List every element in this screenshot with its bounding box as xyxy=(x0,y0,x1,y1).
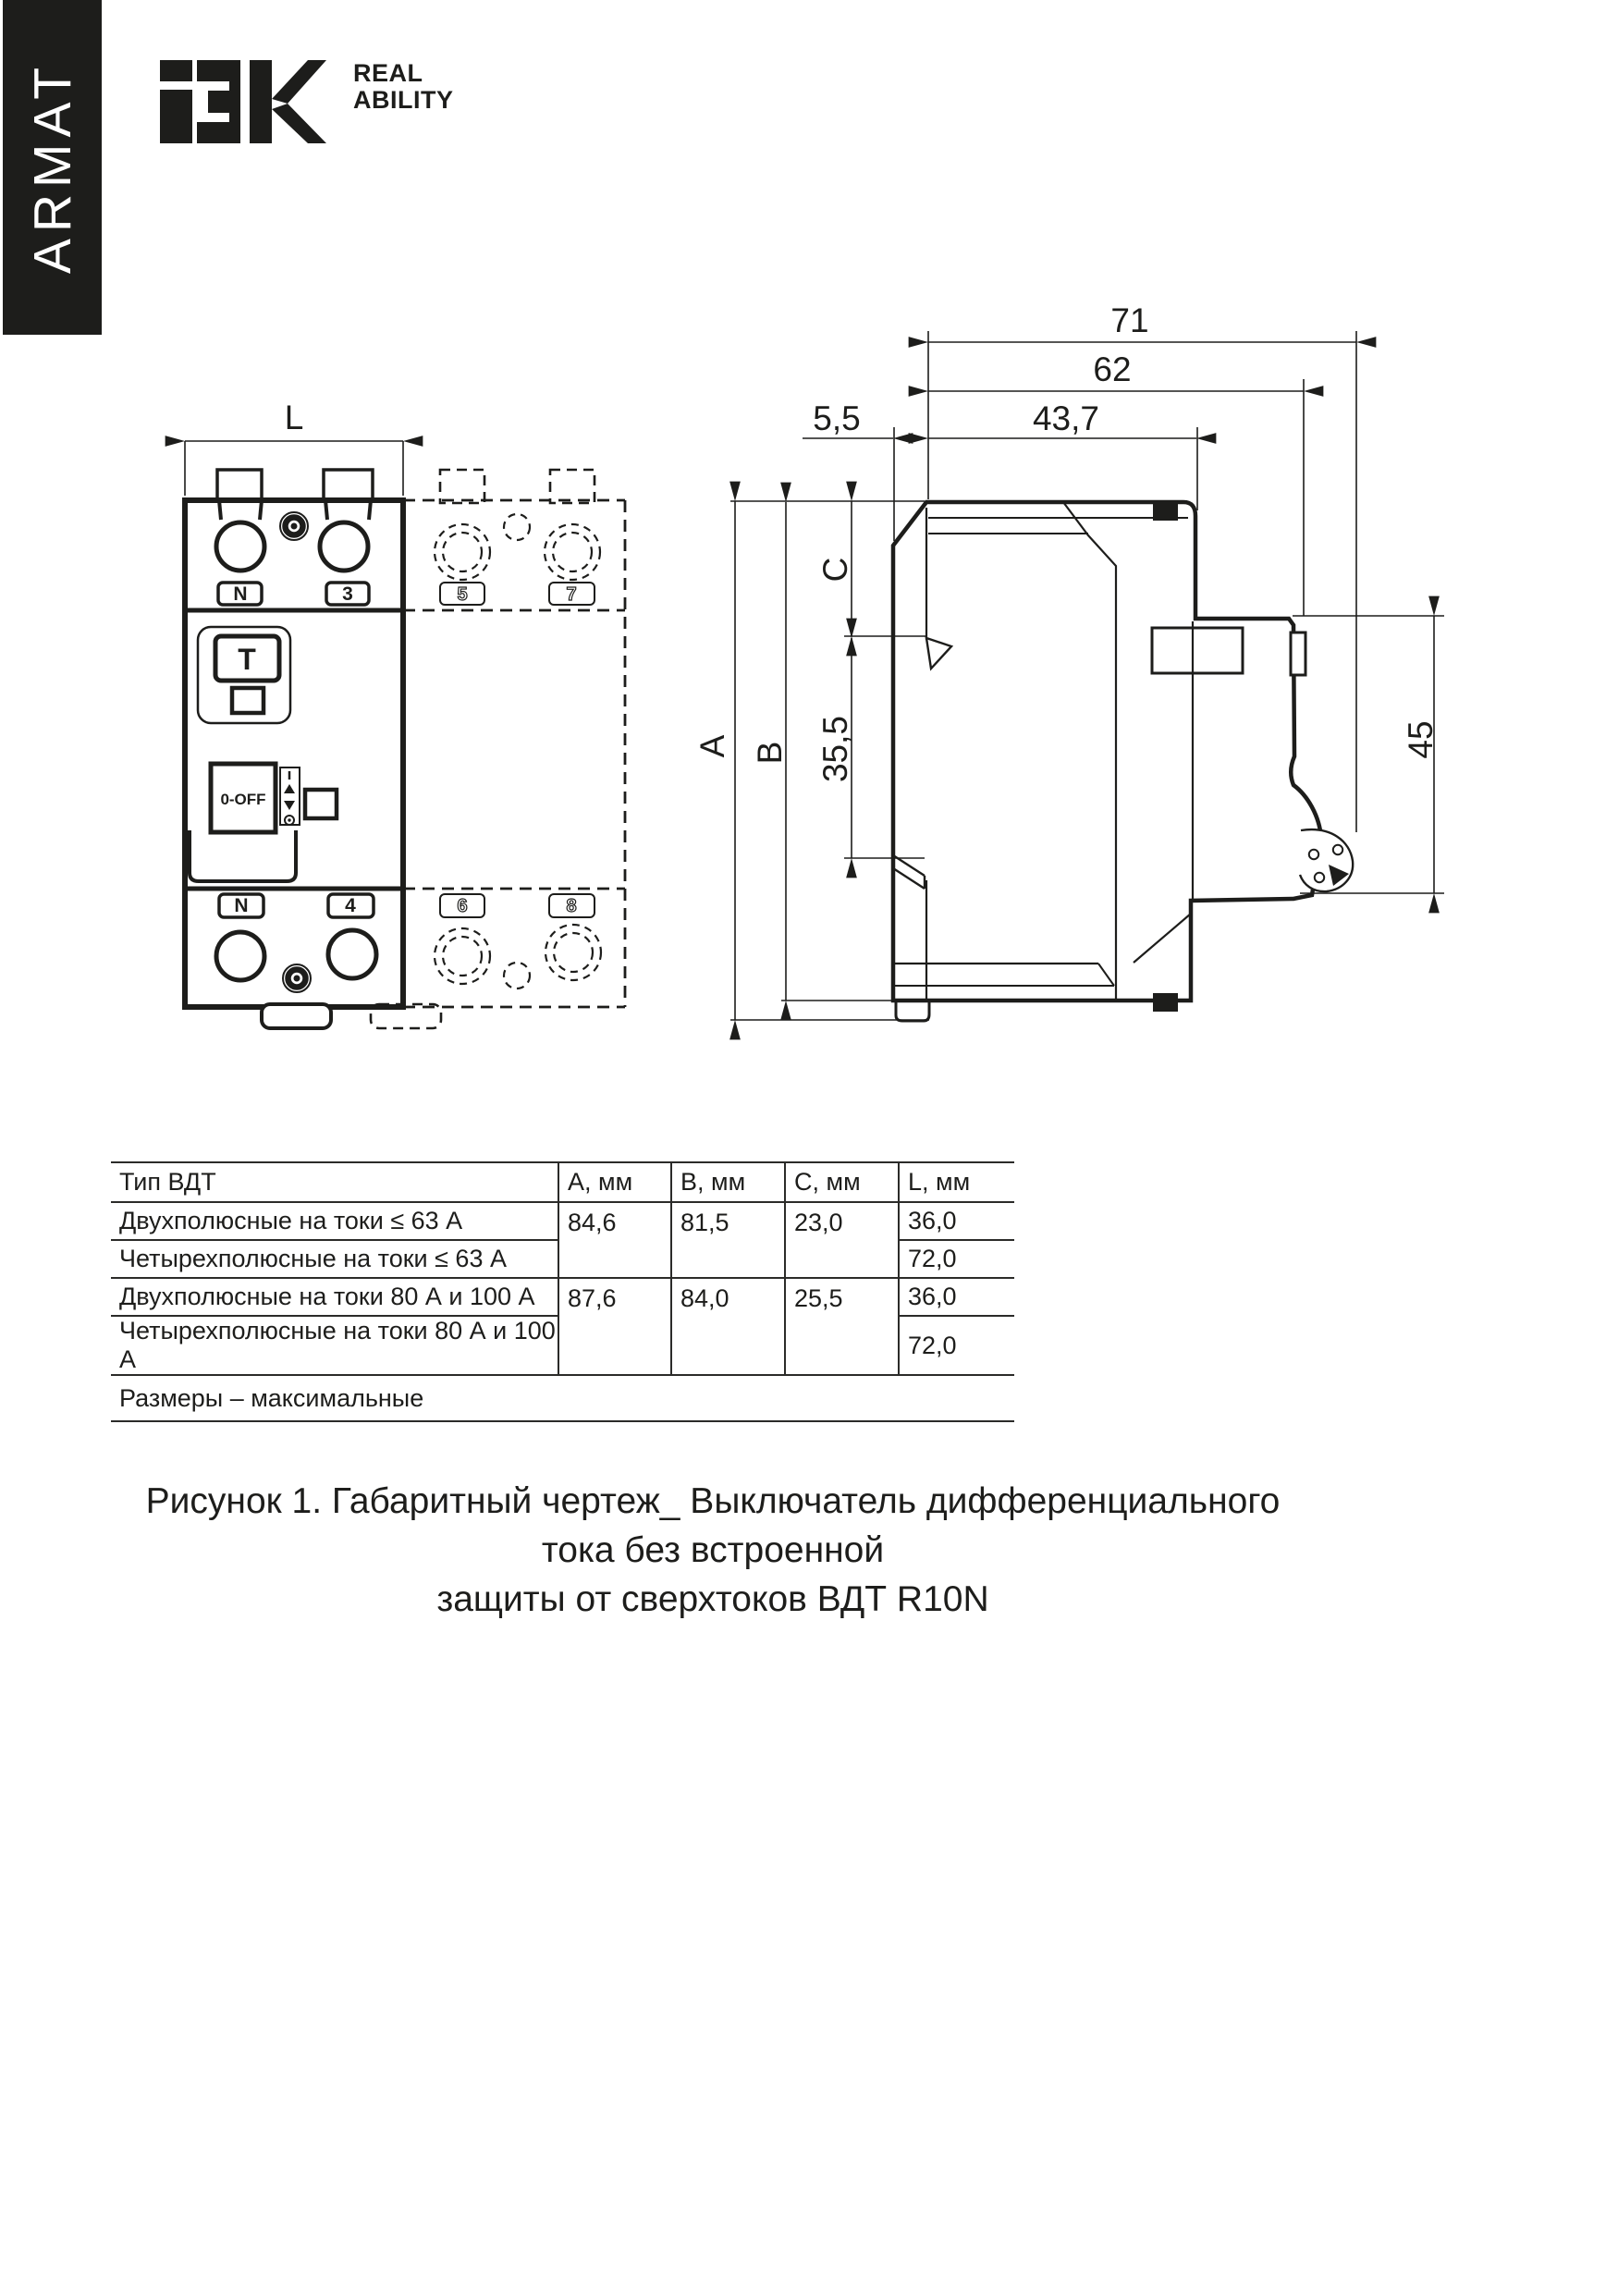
cell-c: 23,0 xyxy=(785,1202,899,1278)
logo-tagline-line2: ABILITY xyxy=(353,86,454,114)
table-row: Двухполюсные на токи 80 А и 100 А 87,6 8… xyxy=(111,1278,1014,1316)
cell-l: 36,0 xyxy=(899,1278,1014,1316)
din-clip-front-icon xyxy=(262,1004,331,1028)
col-header-l: L, мм xyxy=(899,1162,1014,1202)
terminal-label-7: 7 xyxy=(566,584,576,605)
test-button-label: T xyxy=(238,643,256,676)
dim-label-43-7: 43,7 xyxy=(1033,399,1099,437)
table-row: Двухполюсные на токи ≤ 63 А 84,6 81,5 23… xyxy=(111,1202,1014,1240)
cell-a: 87,6 xyxy=(558,1278,671,1375)
logo-tagline-line1: REAL xyxy=(353,59,423,87)
table-footnote: Размеры – максимальные xyxy=(111,1375,1014,1421)
terminal-clamp-icon xyxy=(1300,829,1353,891)
figure-caption-line1: Рисунок 1. Габаритный чертеж_ Выключател… xyxy=(108,1477,1318,1575)
datasheet-page: ARMAT REAL ABILITY xyxy=(0,0,1618,2296)
indicator-window-bottom-icon xyxy=(283,964,311,992)
figure-caption: Рисунок 1. Габаритный чертеж_ Выключател… xyxy=(108,1477,1318,1624)
dim-label-B: B xyxy=(751,742,789,765)
terminal-label-4: 4 xyxy=(345,895,356,916)
dimensional-drawing: REAL ABILITY xyxy=(0,0,1618,1073)
iek-logo-icon xyxy=(160,60,326,143)
terminal-label-3: 3 xyxy=(342,583,353,605)
cell-l: 72,0 xyxy=(899,1240,1014,1278)
terminal-label-5: 5 xyxy=(457,584,467,605)
dim-label-C: C xyxy=(816,558,854,583)
switch-label: 0-OFF xyxy=(220,791,265,808)
dim-label-35-5: 35,5 xyxy=(816,716,854,782)
table-footnote-row: Размеры – максимальные xyxy=(111,1375,1014,1421)
dim-label-45: 45 xyxy=(1402,720,1440,758)
col-header-b: В, мм xyxy=(671,1162,785,1202)
col-header-type: Тип ВДТ xyxy=(111,1162,558,1202)
cell-type: Четырехполюсные на токи 80 А и 100 А xyxy=(111,1316,558,1375)
col-header-c: С, мм xyxy=(785,1162,899,1202)
cell-type: Четырехполюсные на токи ≤ 63 А xyxy=(111,1240,558,1278)
dimensions-table: Тип ВДТ А, мм В, мм С, мм L, мм Двухполю… xyxy=(111,1161,1014,1422)
dim-label-5-5: 5,5 xyxy=(813,399,860,437)
terminal-label-n-bottom: N xyxy=(234,895,248,916)
cell-c: 25,5 xyxy=(785,1278,899,1375)
figure-caption-line2: защиты от сверхтоков ВДТ R10N xyxy=(108,1575,1318,1624)
cell-type: Двухполюсные на токи 80 А и 100 А xyxy=(111,1278,558,1316)
cell-b: 81,5 xyxy=(671,1202,785,1278)
terminal-label-n-top: N xyxy=(233,583,247,605)
cell-l: 36,0 xyxy=(899,1202,1014,1240)
front-view xyxy=(185,470,625,1028)
table-header-row: Тип ВДТ А, мм В, мм С, мм L, мм xyxy=(111,1162,1014,1202)
assembly-pin-top-icon xyxy=(1153,504,1178,521)
cell-type: Двухполюсные на токи ≤ 63 А xyxy=(111,1202,558,1240)
dim-label-A: A xyxy=(693,734,731,757)
dim-label-62: 62 xyxy=(1093,350,1131,388)
assembly-pin-bottom-icon xyxy=(1153,993,1178,1012)
dim-label-71: 71 xyxy=(1110,301,1148,339)
din-clip-side-icon xyxy=(896,1001,929,1021)
indicator-window-top-icon xyxy=(280,512,308,540)
terminal-label-6: 6 xyxy=(457,896,467,916)
cell-b: 84,0 xyxy=(671,1278,785,1375)
cell-l: 72,0 xyxy=(899,1316,1014,1375)
cell-a: 84,6 xyxy=(558,1202,671,1278)
terminal-label-8: 8 xyxy=(566,896,576,916)
side-view xyxy=(893,502,1353,1021)
dim-label-L: L xyxy=(285,399,304,436)
col-header-a: А, мм xyxy=(558,1162,671,1202)
